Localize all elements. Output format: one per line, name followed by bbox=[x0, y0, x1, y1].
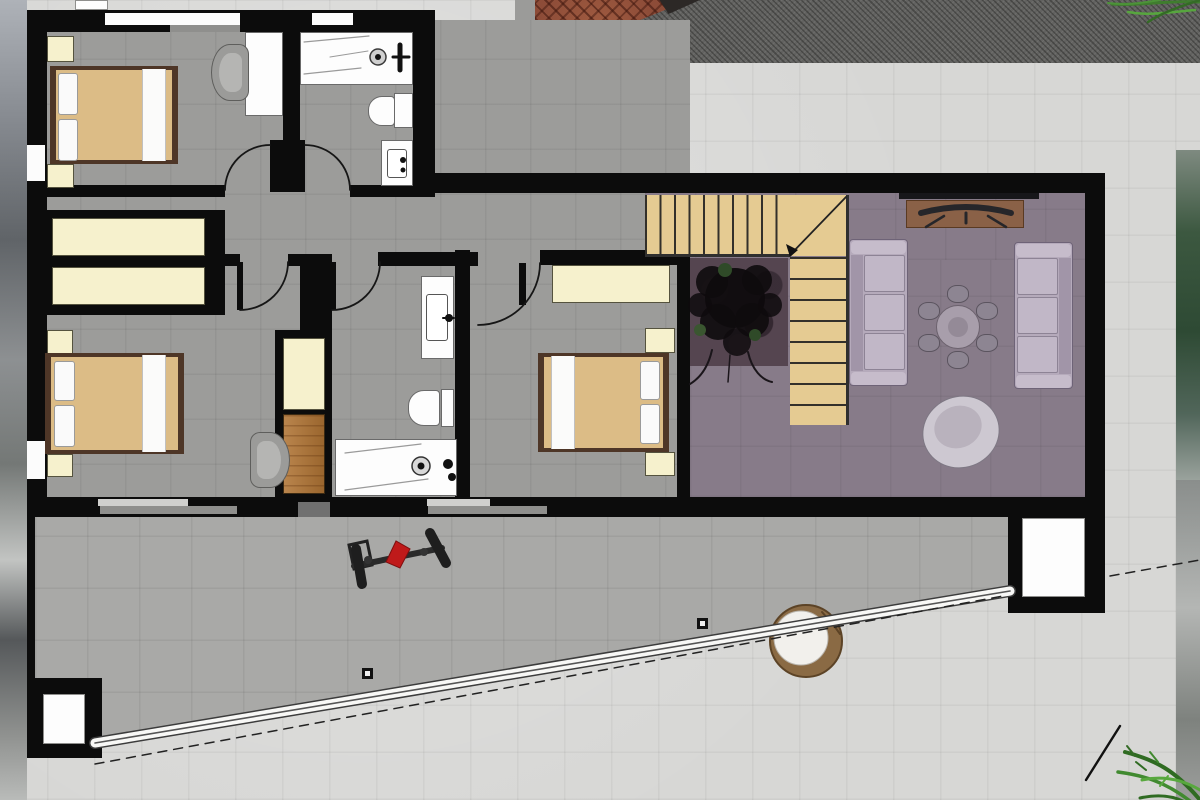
dining-chair-6 bbox=[976, 334, 998, 352]
bed1-blanket bbox=[142, 69, 166, 161]
blur-edge-left bbox=[0, 0, 27, 800]
nightstand-bed3-a bbox=[645, 328, 675, 353]
chair-bed1-seat bbox=[219, 53, 242, 92]
bed1-pillow-a bbox=[58, 73, 78, 115]
door-leaf-bath2 bbox=[330, 262, 336, 310]
desk-bed1 bbox=[245, 32, 283, 116]
tv-soundbar bbox=[899, 193, 1039, 199]
planter-sw-inner bbox=[43, 694, 85, 744]
tv-console bbox=[906, 200, 1024, 228]
sofa-left-arm-bottom bbox=[851, 372, 906, 385]
wall-bed3-east bbox=[677, 258, 690, 497]
stairs-lower-run bbox=[790, 257, 848, 425]
nightstand-bed3-b bbox=[645, 452, 675, 476]
closet-bed2 bbox=[52, 267, 205, 305]
chair-bed2-seat bbox=[257, 441, 281, 479]
nightstand-bed1-b bbox=[47, 164, 74, 188]
dining-chair-3 bbox=[918, 302, 940, 320]
sofa-left-cushion-3 bbox=[864, 333, 905, 370]
dining-chair-2 bbox=[947, 351, 969, 369]
toilet-bath1-bowl bbox=[368, 96, 395, 126]
sliding-door-2b bbox=[428, 506, 547, 514]
bed2-pillow-b bbox=[54, 405, 75, 447]
sliding-door-2a bbox=[427, 499, 490, 506]
closet-bed3 bbox=[552, 265, 670, 303]
wall-living-right bbox=[1085, 173, 1105, 517]
toilet-bath2-cistern bbox=[441, 389, 454, 427]
sliding-door-1b bbox=[100, 506, 237, 514]
dining-chair-4 bbox=[918, 334, 940, 352]
window-left-2 bbox=[27, 441, 45, 479]
wall-bath2-bed3 bbox=[455, 250, 470, 497]
door-leaf-bed2 bbox=[237, 262, 243, 310]
vanity-bath2-basin bbox=[426, 294, 448, 341]
dining-chair-5 bbox=[976, 302, 998, 320]
bed3-pillow-a bbox=[640, 361, 660, 400]
wall-bed1-bath1 bbox=[283, 10, 300, 142]
nightstand-bed2-a bbox=[47, 330, 73, 354]
dining-table-center bbox=[948, 317, 968, 337]
bed3-pillow-b bbox=[640, 404, 660, 444]
toilet-bath1-cistern bbox=[394, 93, 413, 128]
sofa-right-arm-bottom bbox=[1016, 375, 1071, 388]
sofa-right-back bbox=[1059, 258, 1071, 374]
dining-chair-1 bbox=[947, 285, 969, 303]
planter-se-inner bbox=[1022, 518, 1085, 597]
wardrobe-mid bbox=[283, 338, 325, 410]
window-top-1 bbox=[105, 13, 240, 25]
bed3-blanket bbox=[551, 356, 575, 449]
stairs-edge-line bbox=[846, 195, 849, 425]
sofa-left-cushion-2 bbox=[864, 294, 905, 331]
nightstand-bed1-a bbox=[47, 36, 74, 62]
sink-bath1-basin bbox=[387, 149, 407, 178]
toilet-bath2-bowl bbox=[408, 390, 440, 426]
stairs-winder bbox=[790, 195, 848, 256]
floor-plan-canvas bbox=[0, 0, 1200, 800]
sofa-left-cushion-1 bbox=[864, 255, 905, 292]
shower-bath1 bbox=[300, 32, 413, 85]
sofa-right-cushion-3 bbox=[1017, 336, 1058, 373]
window-sill bbox=[170, 25, 240, 32]
sofa-right-cushion-2 bbox=[1017, 297, 1058, 334]
sofa-left-back bbox=[851, 255, 863, 371]
nightstand-bed2-b bbox=[47, 454, 73, 477]
bed2-blanket bbox=[142, 355, 166, 452]
blur-edge-right-gray bbox=[1176, 480, 1200, 800]
sofa-left-arm-top bbox=[851, 241, 906, 254]
wall-bath1-south bbox=[350, 185, 435, 197]
sofa-right-cushion-1 bbox=[1017, 258, 1058, 295]
wall-bath1-east bbox=[413, 10, 435, 197]
wall-living-top bbox=[433, 173, 1105, 193]
window-top-2 bbox=[312, 13, 353, 25]
shower-bath2 bbox=[335, 439, 457, 496]
stairs-bottom-line bbox=[645, 254, 790, 257]
door-leaf-bed3 bbox=[519, 263, 526, 305]
door-step bbox=[298, 502, 330, 517]
bed1-pillow-b bbox=[58, 119, 78, 161]
planter-box-interior bbox=[690, 258, 788, 366]
stairs-upper-run bbox=[645, 195, 790, 256]
bed2-pillow-a bbox=[54, 361, 75, 401]
sliding-door-1a bbox=[98, 499, 188, 506]
closet-bed1 bbox=[52, 218, 205, 256]
sofa-right-arm-top bbox=[1016, 244, 1071, 257]
blur-edge-right-green bbox=[1176, 150, 1200, 480]
roof-edge-white-block bbox=[75, 0, 108, 10]
window-left-1 bbox=[27, 145, 45, 181]
wall-column-bath2 bbox=[300, 254, 332, 335]
wall-door-block bbox=[270, 140, 305, 192]
